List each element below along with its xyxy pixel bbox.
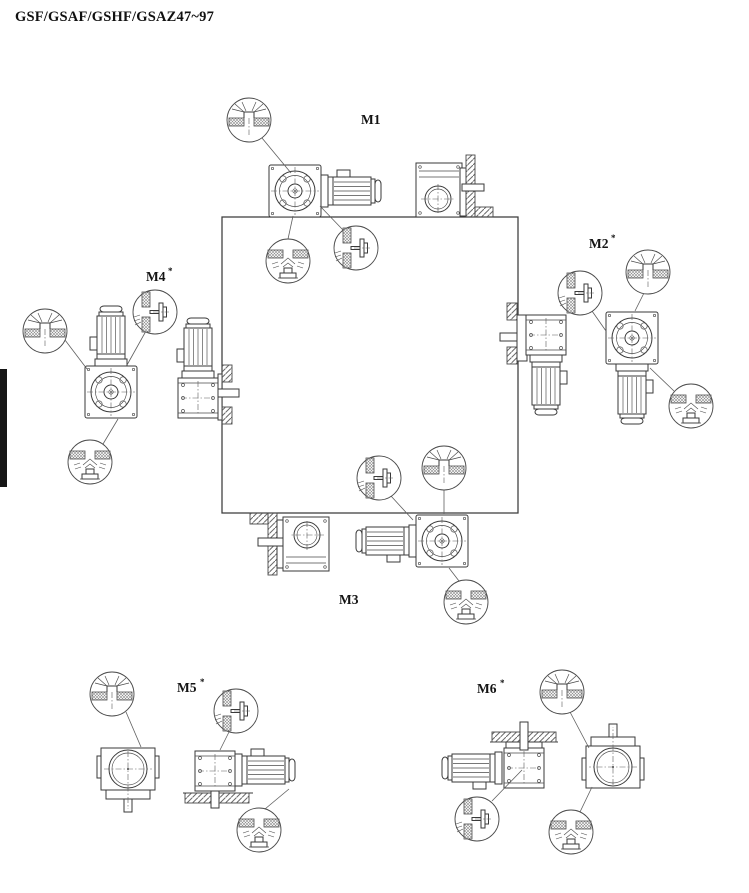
- m5-output-shaft: [211, 791, 219, 808]
- drain-plug-callout-icon: [237, 808, 281, 852]
- position-label-m4-sup: *: [168, 266, 173, 276]
- vent-plug-callout-icon: [422, 446, 466, 490]
- level-plug-callout-icon: [214, 689, 258, 733]
- leader-line: [220, 732, 229, 750]
- leader-line: [580, 787, 592, 812]
- catalog-page: GSF/GSAF/GSHF/GSAZ47~97 M1: [0, 0, 749, 893]
- m2-wall-hatch: [507, 303, 517, 320]
- level-plug-callout-icon: [334, 226, 378, 270]
- leader-line: [650, 368, 674, 391]
- m3-side-view-ceiling-mounted: [250, 513, 329, 575]
- drain-plug-callout-icon: [68, 440, 112, 484]
- m5-gearbox-shaft-down-view: [97, 748, 159, 812]
- mounting-positions-diagram: GSF/GSAF/GSHF/GSAZ47~97 M1: [0, 0, 749, 893]
- drain-plug-callout-icon: [444, 580, 488, 624]
- vent-plug-callout-icon: [227, 98, 271, 142]
- m6-gearbox-shaft-up-view: [582, 724, 644, 788]
- leader-line: [635, 293, 644, 311]
- m2-motor-front: [616, 364, 653, 424]
- m4-gearbox-side-view: [178, 378, 218, 418]
- position-label-m5-sup: *: [200, 677, 205, 687]
- position-label-m5: M5: [177, 680, 197, 695]
- m3-wall-foot-hatch: [250, 513, 268, 524]
- m4-motor-front: [90, 306, 127, 366]
- vent-plug-callout-icon: [23, 309, 67, 353]
- position-m4-group: M4 *: [23, 266, 239, 484]
- m4-output-shaft: [218, 389, 239, 397]
- page-title: GSF/GSAF/GSHF/GSAZ47~97: [15, 9, 214, 25]
- m1-gearbox-side-view: [416, 163, 462, 217]
- m1-mounting-flange: [460, 168, 466, 216]
- m1-motor: [321, 170, 381, 207]
- position-label-m2-sup: *: [611, 233, 616, 243]
- position-label-m1: M1: [361, 112, 381, 127]
- m3-gearbox-front-view: [416, 515, 468, 567]
- m1-wall-foot-hatch: [475, 207, 493, 217]
- m3-motor: [356, 525, 416, 562]
- position-m1-group: M1: [227, 98, 493, 283]
- m4-motor-side: [177, 318, 214, 378]
- vent-plug-callout-icon: [90, 672, 134, 716]
- vent-plug-callout-icon: [626, 250, 670, 294]
- level-plug-callout-icon: [455, 797, 499, 841]
- leader-line: [126, 712, 141, 747]
- position-label-m3: M3: [339, 592, 359, 607]
- m6-side-view-ceiling-mounted: [442, 722, 558, 789]
- leader-line: [288, 216, 293, 239]
- leader-line: [320, 206, 343, 230]
- level-plug-callout-icon: [133, 290, 177, 334]
- m5-side-view-floor-mounted: [183, 749, 295, 808]
- position-label-m2: M2: [589, 236, 609, 251]
- position-label-m4: M4: [146, 269, 166, 284]
- position-label-m6-sup: *: [500, 678, 505, 688]
- position-m6-group: M6 *: [442, 670, 644, 854]
- m4-gearbox-front-view: [85, 366, 137, 418]
- leader-line: [449, 568, 459, 581]
- drain-plug-callout-icon: [549, 810, 593, 854]
- leader-line: [127, 331, 146, 365]
- leader-line: [65, 340, 87, 369]
- m2-output-shaft: [500, 333, 517, 341]
- leader-line: [391, 496, 413, 520]
- m3-output-shaft: [258, 538, 283, 546]
- m1-gearbox-front-view: [269, 165, 321, 217]
- position-m3-group: M3: [250, 446, 488, 624]
- m2-gearbox-side-view: [526, 315, 566, 355]
- level-plug-callout-icon: [558, 271, 602, 315]
- vent-plug-callout-icon: [540, 670, 584, 714]
- m6-output-shaft: [520, 722, 528, 750]
- m4-wall-hatch: [222, 365, 232, 382]
- m5-gearbox-side-view: [195, 751, 235, 791]
- m4-wall-hatch: [222, 407, 232, 424]
- m5-motor: [235, 749, 295, 786]
- level-plug-callout-icon: [357, 456, 401, 500]
- leader-line: [570, 712, 589, 748]
- leader-line: [592, 311, 606, 331]
- page-edge-marker: [0, 369, 7, 487]
- drain-plug-callout-icon: [266, 239, 310, 283]
- m2-motor-side: [530, 355, 567, 415]
- m2-wall-hatch: [507, 347, 517, 364]
- m6-motor: [442, 752, 502, 789]
- position-label-m6: M6: [477, 681, 497, 696]
- position-m5-group: M5 *: [90, 672, 295, 852]
- m2-gearbox-front-view: [606, 312, 658, 364]
- position-m2-group: M2 *: [500, 233, 713, 428]
- m1-side-view-wall-mounted: [416, 155, 493, 217]
- m3-gearbox-side-view: [283, 517, 329, 571]
- leader-line: [103, 419, 118, 444]
- leader-line: [265, 789, 289, 809]
- m1-output-shaft: [462, 184, 484, 191]
- drain-plug-callout-icon: [669, 384, 713, 428]
